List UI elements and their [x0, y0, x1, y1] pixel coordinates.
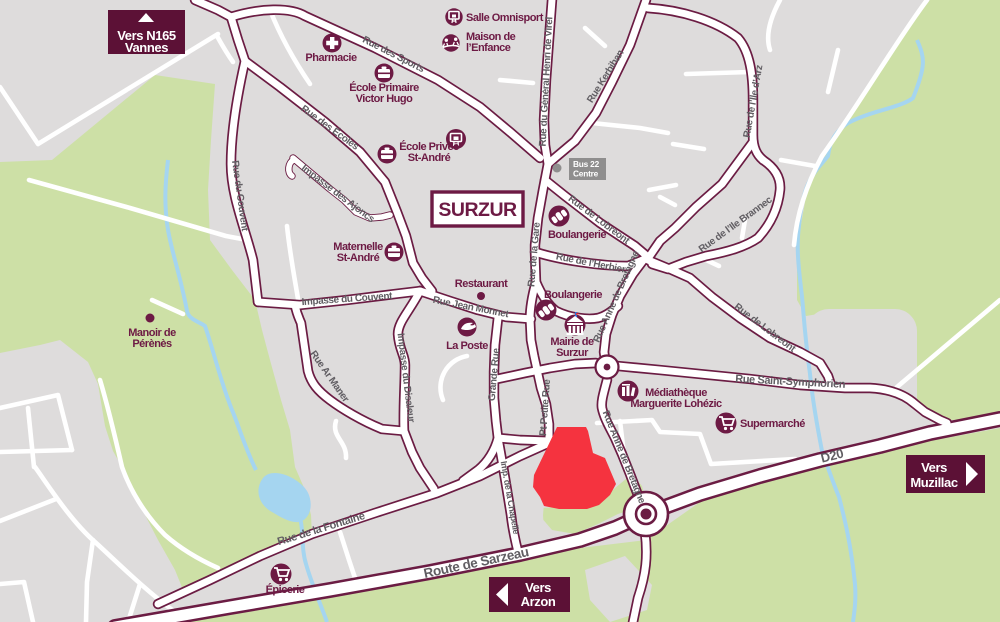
svg-text:Surzur: Surzur [556, 347, 589, 359]
svg-text:Boulangerie: Boulangerie [544, 289, 602, 301]
svg-text:Épicerie: Épicerie [266, 583, 305, 596]
svg-text:Muzillac: Muzillac [910, 475, 958, 490]
svg-text:Bus 22: Bus 22 [573, 159, 600, 169]
svg-text:Vers: Vers [525, 580, 551, 595]
svg-text:Centre: Centre [573, 169, 599, 179]
svg-text:l’Enfance: l’Enfance [466, 42, 511, 54]
svg-text:Supermarché: Supermarché [740, 418, 805, 430]
svg-text:Marguerite Lohézic: Marguerite Lohézic [630, 398, 722, 410]
svg-text:Restaurant: Restaurant [455, 278, 508, 290]
svg-text:Boulangerie: Boulangerie [548, 229, 606, 241]
svg-text:Vannes: Vannes [125, 40, 168, 55]
svg-text:St-André: St-André [408, 152, 451, 164]
svg-text:St-André: St-André [337, 252, 380, 264]
svg-text:SURZUR: SURZUR [438, 199, 517, 221]
svg-text:Pharmacie: Pharmacie [305, 52, 357, 64]
svg-text:Salle Omnisport: Salle Omnisport [466, 12, 544, 24]
svg-text:Arzon: Arzon [521, 594, 556, 609]
svg-text:La Poste: La Poste [446, 340, 488, 352]
svg-text:Vers: Vers [921, 460, 947, 475]
svg-text:Pérènès: Pérènès [132, 338, 172, 350]
svg-text:Victor Hugo: Victor Hugo [356, 93, 413, 105]
